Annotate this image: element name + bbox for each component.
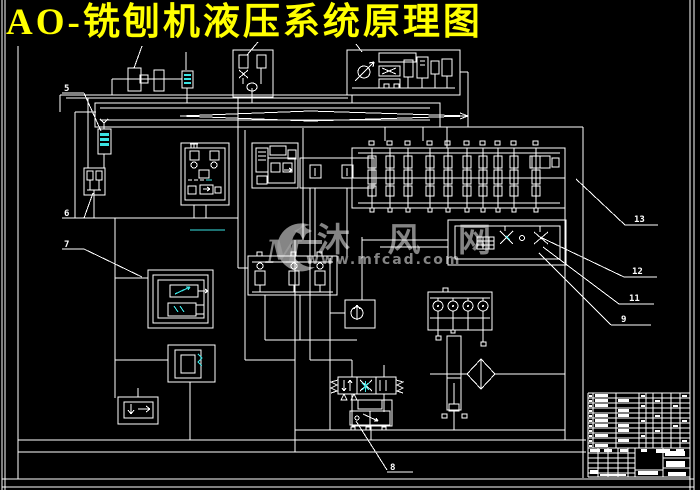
watermark-url: www.mfcad.com: [306, 252, 462, 268]
cad-canvas: AO-铣刨机液压系统原理图 M 沐 风 网 www.mfcad.com: [0, 0, 700, 490]
part-labels: 5 6 7 8 9 11 1: [62, 84, 658, 473]
part-label-13: 13: [576, 179, 658, 225]
part-label-8: 8: [356, 421, 413, 473]
filter: [467, 359, 495, 389]
long-cylinder-lance: [95, 103, 468, 127]
schematic-svg: M 沐 风 网 www.mfcad.com: [0, 0, 700, 490]
part-label-9: 9: [539, 253, 651, 325]
title-block: [583, 390, 690, 478]
small-pump-box: [345, 300, 375, 328]
manifold-block-center: [252, 143, 374, 188]
svg-text:11: 11: [629, 294, 640, 304]
drawing-title: AO-铣刨机液压系统原理图: [6, 0, 483, 46]
part-label-7: 7: [62, 240, 142, 277]
svg-text:12: 12: [632, 267, 643, 277]
motor-group: [428, 288, 492, 346]
valve-bank: [352, 141, 565, 212]
vertical-cylinder: [442, 336, 467, 418]
directional-valve: [331, 365, 403, 400]
valve-box-top: [233, 50, 273, 97]
manifold-block-left: [181, 143, 229, 218]
accumulator: [98, 119, 111, 154]
part-label-6: 6: [62, 193, 93, 219]
shuttle-valve-box: [118, 397, 158, 424]
left-lower-block: [148, 270, 213, 328]
svg-text:9: 9: [621, 315, 626, 325]
pump-station-box: [347, 50, 460, 95]
svg-text:13: 13: [634, 215, 645, 225]
watermark: M 沐 风 网 www.mfcad.com: [265, 220, 504, 271]
pilot-valve-component: [182, 71, 193, 88]
cylinder-top-left: [112, 68, 182, 91]
bottom-valve-block: [350, 400, 392, 430]
title-block-text-marks: [589, 394, 687, 476]
left-bottom-valve-box: [168, 345, 215, 382]
